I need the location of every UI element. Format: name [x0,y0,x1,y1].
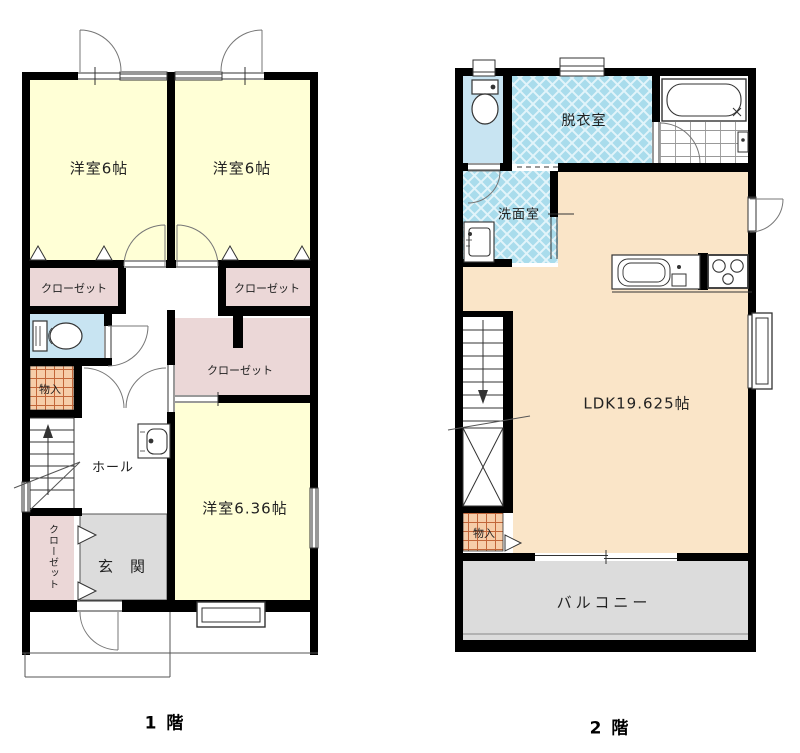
floor1-plan [14,30,318,677]
ldk-floor-c [513,311,558,553]
kitchen-sink-unit [612,255,700,289]
ldk-floor-b [463,267,558,311]
bedroom2-entry-door [221,30,262,72]
kitchen-stove-unit [708,255,748,288]
storage1-door [84,368,124,408]
closet2-floor [226,268,310,306]
toilet-fixture-2f [472,80,498,124]
ldk-floor-a [558,172,748,553]
storage2-floor [463,512,503,551]
vanity-fixture-1f [138,424,170,458]
floor2-plan [448,58,783,652]
closet1-floor [30,268,118,306]
floor1-porch [22,602,318,677]
front-door [80,612,118,650]
basin-fixture-2f [464,222,494,262]
bedroom3-floor [175,403,310,600]
bedroom3-door [126,368,166,408]
kitchen-counter [612,255,752,292]
bedroom1-entry-door [80,30,121,72]
balcony-floor [463,561,748,640]
floor-plan-image: 洋室6帖 洋室6帖 クローゼット クローゼット クローゼット クローゼット 物入… [0,0,800,753]
bathroom-tile-floor [660,122,748,163]
toilet-fixture-1f [33,321,82,351]
entry-floor [80,514,167,600]
bedroom2-floor [175,80,310,260]
closet4-floor [30,516,74,600]
storage1-floor [30,366,74,410]
bedroom1-floor [30,80,167,260]
floor-plan-drawing [0,0,800,753]
dressing-room-floor [512,76,652,164]
toilet1-door [108,326,148,366]
